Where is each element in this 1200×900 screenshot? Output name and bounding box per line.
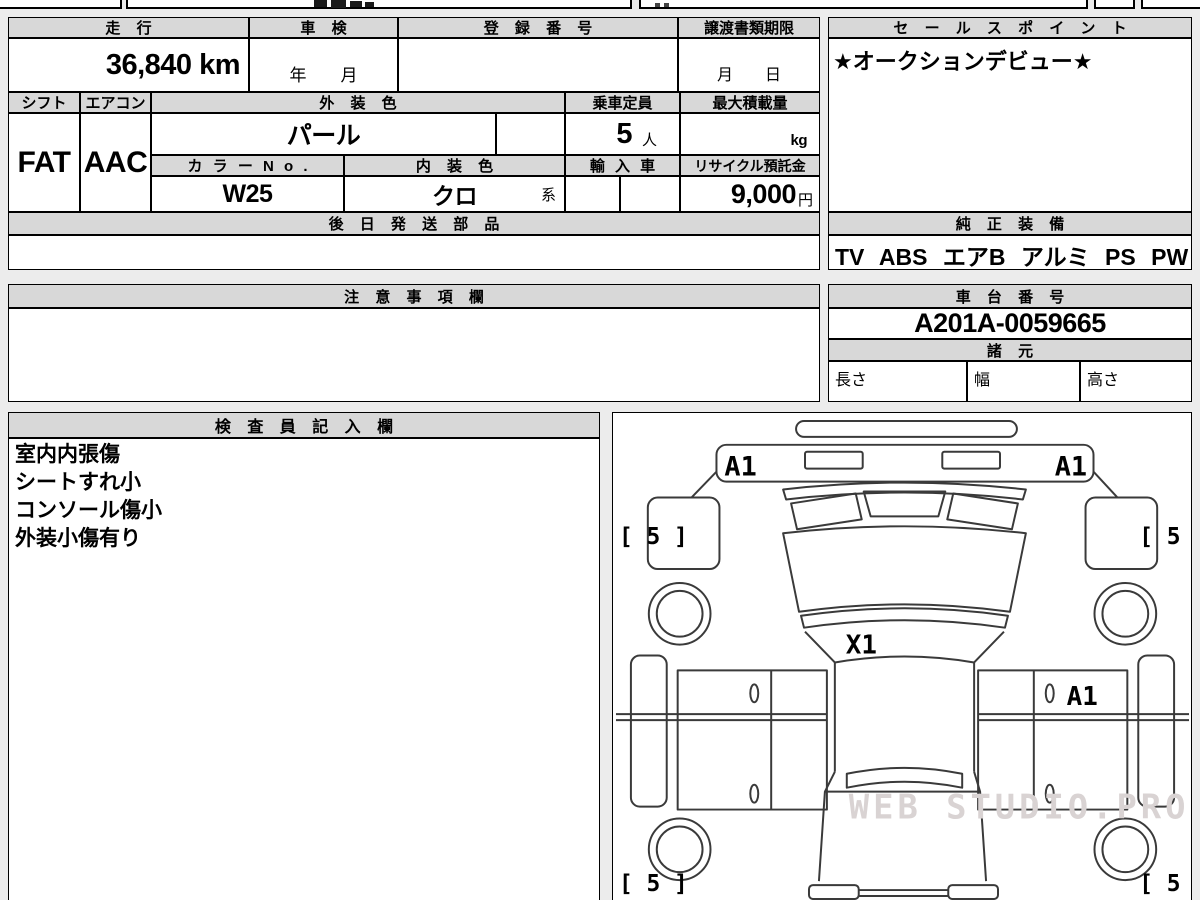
clipped-text-fragment: [655, 3, 660, 7]
damage-mark-right-door: A1: [1066, 682, 1097, 712]
sales-point-header: セ ー ル ス ポ イ ン ト: [828, 17, 1192, 38]
top-strip-cell: [1141, 0, 1200, 9]
clipped-text-fragment: [350, 1, 362, 7]
tire-mark-front-left: [ 5 ]: [618, 524, 687, 550]
genuine-equipment-value: TV ABS エアB アルミ PS PW: [828, 235, 1192, 270]
genuine-equipment-header: 純 正 装 備: [828, 212, 1192, 235]
sales-point-value: ★オークションデビュー★: [828, 38, 1192, 212]
max-load-header: 最大積載量: [680, 92, 820, 113]
recycle-deposit-unit: 円: [798, 179, 813, 210]
car-outline: [615, 420, 1188, 898]
max-load-unit: kg: [790, 132, 819, 154]
recycle-deposit-value: 9,000: [731, 179, 796, 210]
inspector-note: 室内内張傷: [15, 441, 120, 469]
capacity-header: 乗車定員: [565, 92, 680, 113]
capacity-value: 5: [616, 118, 632, 151]
spec-width-label: 幅: [967, 361, 1080, 402]
transfer-deadline-value: 月 日: [678, 38, 820, 92]
car-damage-diagram: WEB STUDIO.PRO A1 A1 X1 A1 [ 5 ] [ 5 ] […: [614, 414, 1191, 900]
chassis-no-header: 車 台 番 号: [828, 284, 1192, 308]
spec-length-label: 長さ: [828, 361, 967, 402]
interior-color-header: 内 装 色: [344, 155, 565, 176]
damage-diagram-box: WEB STUDIO.PRO A1 A1 X1 A1 [ 5 ] [ 5 ] […: [612, 412, 1192, 900]
later-parts-value: [8, 235, 820, 270]
import-car-header: 輸 入 車: [565, 155, 680, 176]
later-parts-header: 後 日 発 送 部 品: [8, 212, 820, 235]
inspector-note: シートすれ小: [15, 469, 141, 497]
tire-mark-rear-right: [ 5 ]: [1139, 871, 1191, 897]
exterior-color-header: 外 装 色: [151, 92, 565, 113]
mileage-header: 走 行: [8, 17, 249, 38]
import-car-cell-2: [620, 176, 680, 212]
aircon-header: エアコン: [80, 92, 151, 113]
top-strip-cell: [126, 0, 632, 9]
top-strip-cell: [0, 0, 122, 9]
top-strip-cell: [1094, 0, 1135, 9]
inspection-value: 年 月: [249, 38, 398, 92]
tire-mark-front-right: [ 5 ]: [1139, 524, 1191, 550]
aircon-value: AAC: [84, 146, 148, 180]
clipped-text-fragment: [664, 3, 669, 7]
spec-height-label: 高さ: [1080, 361, 1192, 402]
registration-value: [398, 38, 678, 92]
specs-header: 諸 元: [828, 339, 1192, 361]
watermark-text: WEB STUDIO.PRO: [848, 787, 1189, 826]
recycle-deposit-header: リサイクル預託金: [680, 155, 820, 176]
inspector-header: 検 査 員 記 入 欄: [8, 412, 600, 438]
damage-mark-front-left: A1: [724, 451, 756, 482]
tire-mark-rear-left: [ 5 ]: [618, 871, 687, 897]
import-car-cell-1: [565, 176, 620, 212]
transfer-deadline-header: 譲渡書類期限: [678, 17, 820, 38]
exterior-color-value: パール: [287, 116, 361, 152]
top-strip-cell: [639, 0, 1088, 9]
shift-value: FAT: [18, 146, 71, 180]
damage-mark-front-right: A1: [1054, 451, 1086, 482]
inspector-note: 外装小傷有り: [15, 525, 141, 553]
damage-mark-windshield: X1: [845, 630, 876, 660]
registration-header: 登 録 番 号: [398, 17, 678, 38]
exterior-color-suffix-cell: [496, 113, 565, 155]
interior-color-value: クロ: [432, 177, 477, 211]
color-no-header: カ ラ ー N o .: [151, 155, 344, 176]
capacity-unit: 人: [642, 119, 657, 150]
auction-sheet: 走 行 車 検 登 録 番 号 譲渡書類期限 36,840 km 年 月 月 日…: [0, 0, 1200, 900]
inspector-note: コンソール傷小: [15, 497, 162, 525]
notes-header: 注 意 事 項 欄: [8, 284, 820, 308]
interior-color-suffix: 系: [541, 184, 556, 205]
clipped-text-fragment: [331, 0, 346, 8]
color-no-value: W25: [223, 180, 273, 209]
shift-header: シフト: [8, 92, 80, 113]
chassis-no-value: A201A-0059665: [914, 308, 1106, 339]
mileage-value: 36,840 km: [106, 49, 240, 82]
notes-value: [8, 308, 820, 402]
clipped-text-fragment: [314, 0, 327, 7]
clipped-text-fragment: [365, 2, 374, 7]
inspection-header: 車 検: [249, 17, 398, 38]
